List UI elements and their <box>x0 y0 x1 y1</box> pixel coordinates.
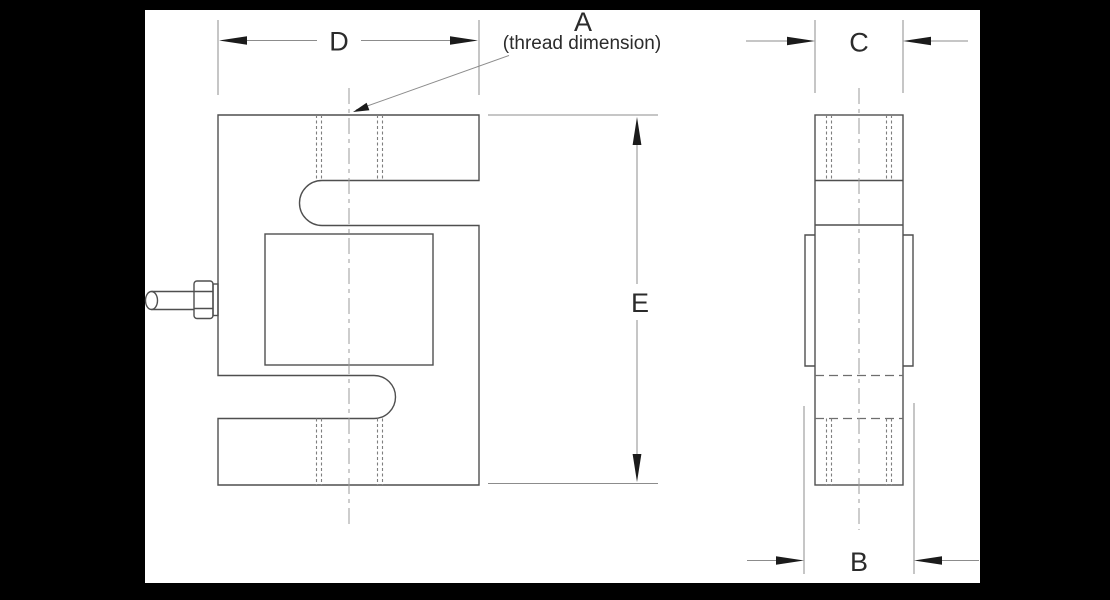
drawing-page: D A (thread dimension) E C B <box>0 0 1110 600</box>
load-cell-drawing: D A (thread dimension) E C B <box>0 0 1110 600</box>
drawing-sheet <box>145 10 980 583</box>
e-label: E <box>631 288 649 318</box>
d-label: D <box>329 27 349 57</box>
b-label: B <box>850 547 868 577</box>
a-note-label: (thread dimension) <box>503 33 661 54</box>
c-label: C <box>849 28 869 58</box>
